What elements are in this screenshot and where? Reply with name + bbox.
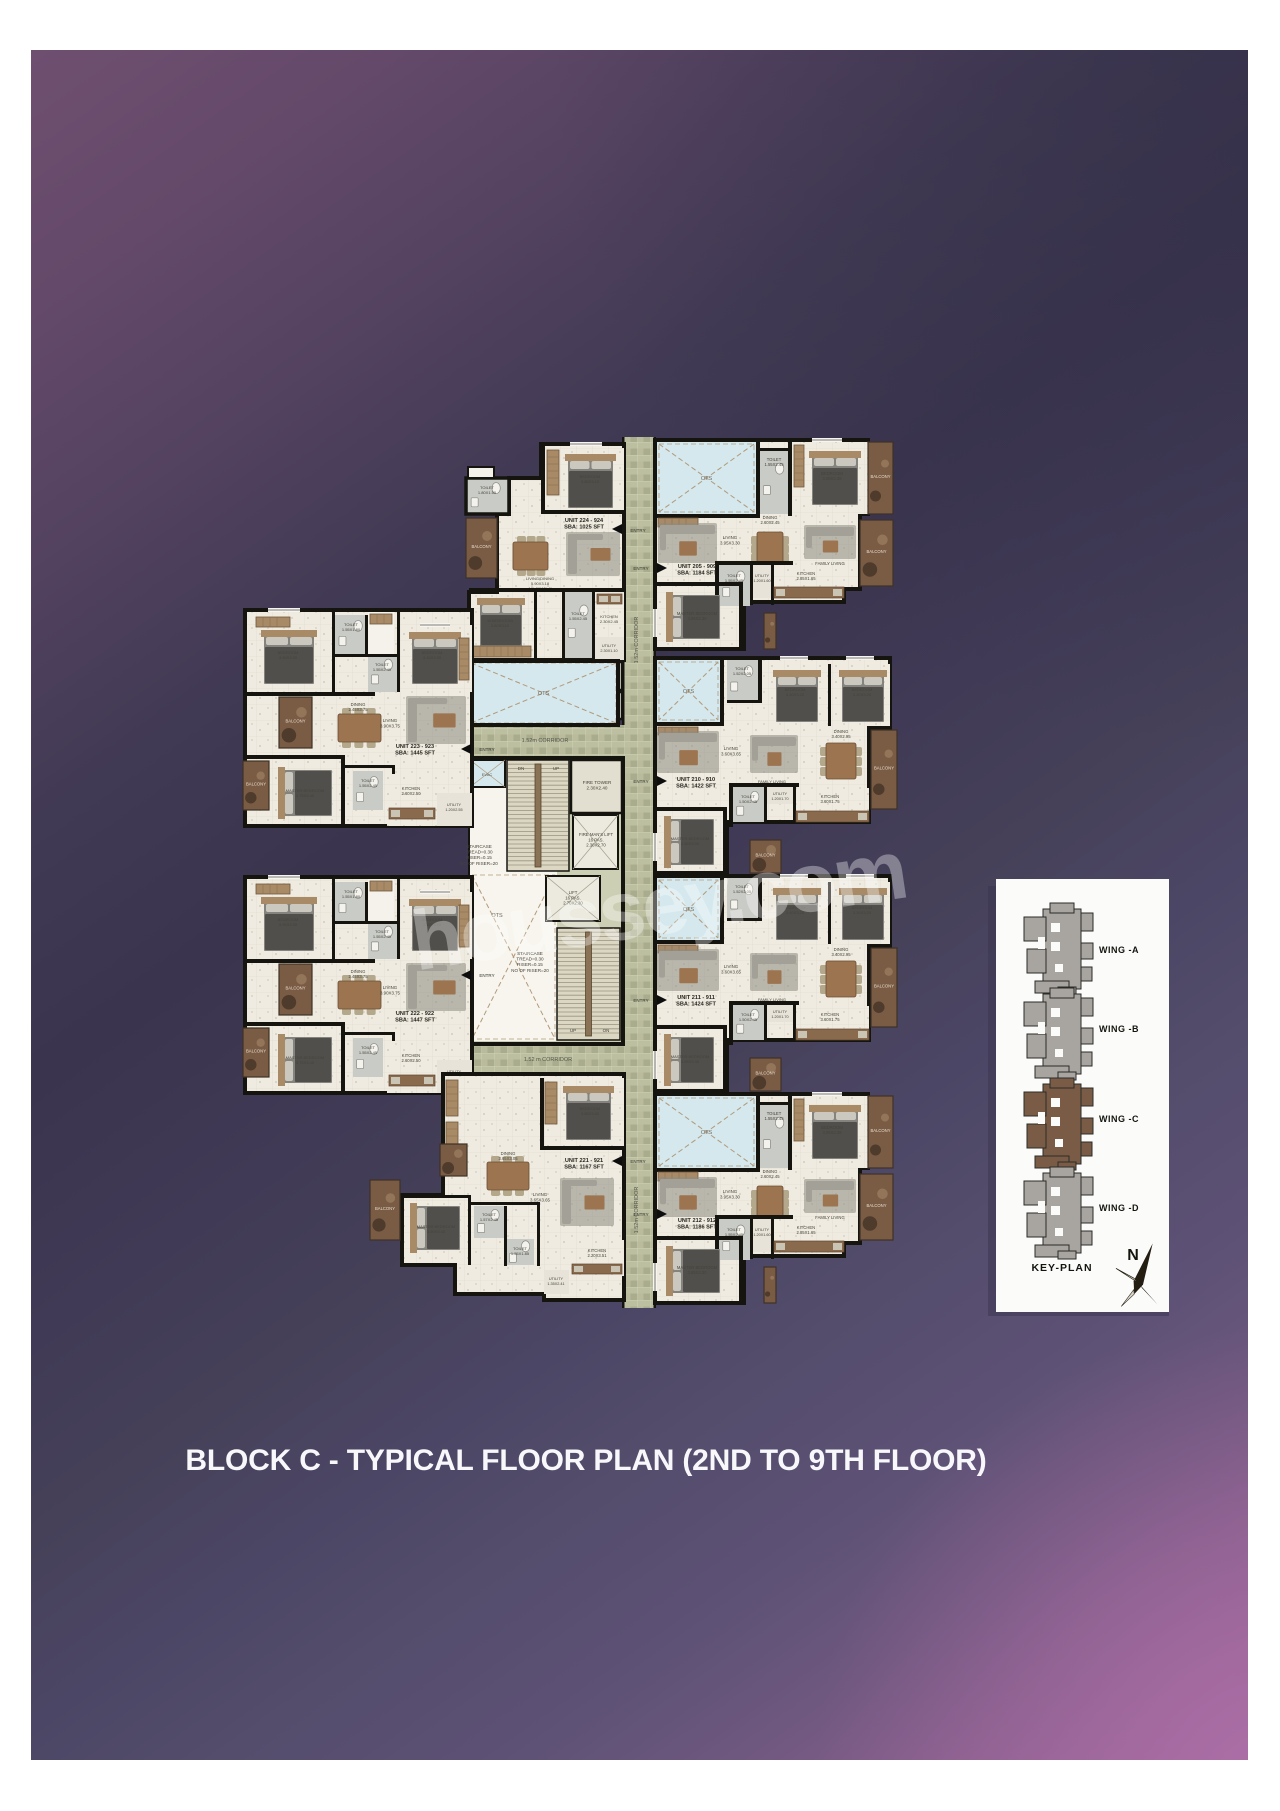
- svg-text:1.20X2.55: 1.20X2.55: [445, 808, 462, 812]
- svg-text:ON: ON: [603, 1028, 610, 1033]
- svg-text:3.95X3.30: 3.95X3.30: [720, 1194, 741, 1199]
- svg-text:WING -B: WING -B: [1099, 1024, 1139, 1034]
- svg-text:SBA: 1445 SFT: SBA: 1445 SFT: [395, 751, 435, 757]
- svg-text:1.20X1.70: 1.20X1.70: [771, 797, 788, 801]
- svg-text:LIVING: LIVING: [723, 1189, 738, 1194]
- svg-text:16 PAS.: 16 PAS.: [588, 837, 603, 842]
- svg-text:LIVING: LIVING: [383, 985, 398, 990]
- svg-text:1.20X1.60: 1.20X1.60: [753, 579, 770, 583]
- svg-text:3.90X3.75: 3.90X3.75: [380, 723, 401, 728]
- svg-text:2.45X3.75: 2.45X3.75: [348, 974, 368, 979]
- svg-text:N: N: [1127, 1247, 1139, 1264]
- svg-text:NO OF RISER=20: NO OF RISER=20: [460, 861, 498, 866]
- svg-text:UNIT 211 - 911: UNIT 211 - 911: [677, 995, 715, 1001]
- svg-text:3.50X3.45: 3.50X3.45: [427, 1229, 446, 1234]
- svg-text:SBA: 1424 SFT: SBA: 1424 SFT: [676, 1002, 716, 1008]
- svg-text:1.55X2.40: 1.55X2.40: [373, 934, 392, 939]
- svg-text:1.52m CORRIDOR: 1.52m CORRIDOR: [634, 617, 640, 664]
- svg-text:SBA: 1186 SFT: SBA: 1186 SFT: [677, 1225, 717, 1231]
- svg-text:UTILITY: UTILITY: [549, 1277, 564, 1281]
- svg-text:3.65X3.30: 3.65X3.30: [687, 1270, 707, 1275]
- svg-text:1.52m CORRIDOR: 1.52m CORRIDOR: [634, 1187, 640, 1234]
- svg-text:UTILITY: UTILITY: [602, 644, 617, 648]
- svg-text:STAIRCASE: STAIRCASE: [466, 844, 492, 849]
- svg-text:1.20X1.70: 1.20X1.70: [771, 1015, 788, 1019]
- svg-text:1.55X1.80: 1.55X1.80: [342, 894, 361, 899]
- svg-text:BALCONY: BALCONY: [866, 549, 886, 554]
- svg-text:1.55X2.40: 1.55X2.40: [373, 667, 392, 672]
- svg-text:EVAC: EVAC: [482, 772, 493, 777]
- svg-text:1.52m CORRIDOR: 1.52m CORRIDOR: [522, 738, 569, 744]
- svg-text:WING -D: WING -D: [1099, 1203, 1139, 1213]
- svg-text:1.52 m CORRIDOR: 1.52 m CORRIDOR: [524, 1057, 572, 1063]
- svg-text:2.60X2.45: 2.60X2.45: [760, 1174, 780, 1179]
- svg-text:3.95X3.55: 3.95X3.55: [279, 922, 298, 927]
- svg-text:1.80X1.50: 1.80X1.50: [478, 490, 497, 495]
- svg-text:1.55X2.45: 1.55X2.45: [359, 783, 378, 788]
- svg-text:SBA: 1184 SFT: SBA: 1184 SFT: [677, 571, 717, 577]
- svg-text:FIRE MAN'S LIFT: FIRE MAN'S LIFT: [579, 832, 614, 837]
- svg-text:UTILITY: UTILITY: [773, 1010, 788, 1014]
- svg-text:ENTRY: ENTRY: [633, 566, 648, 571]
- svg-text:3.65X3.05: 3.65X3.05: [498, 1156, 518, 1161]
- svg-text:UTILITY: UTILITY: [447, 803, 462, 807]
- svg-text:3.60X3.15: 3.60X3.15: [491, 623, 510, 628]
- svg-text:TREAD=0.30: TREAD=0.30: [465, 850, 493, 855]
- svg-text:UNIT 221 - 921: UNIT 221 - 921: [565, 1158, 603, 1164]
- svg-text:WING -A: WING -A: [1099, 945, 1139, 955]
- svg-text:1.55X2.45: 1.55X2.45: [764, 462, 784, 467]
- svg-text:WING -C: WING -C: [1099, 1114, 1139, 1124]
- svg-text:UNIT 210 - 910: UNIT 210 - 910: [677, 777, 715, 783]
- svg-text:3.15X3.55: 3.15X3.55: [423, 655, 442, 660]
- svg-text:SBA: 1025 SFT: SBA: 1025 SFT: [564, 525, 604, 531]
- svg-text:3.05X3.35: 3.05X3.35: [822, 1130, 842, 1135]
- svg-text:2.30X2.40: 2.30X2.40: [587, 786, 608, 791]
- svg-text:3.60X3.65: 3.60X3.65: [721, 751, 742, 756]
- svg-text:2.60X2.45: 2.60X2.45: [760, 520, 780, 525]
- svg-text:3.65X3.65: 3.65X3.65: [581, 1111, 600, 1116]
- svg-text:3.95X3.30: 3.95X3.30: [720, 540, 741, 545]
- svg-text:3.90X3.75: 3.90X3.75: [380, 990, 401, 995]
- svg-text:BALCONY: BALCONY: [755, 1071, 775, 1076]
- svg-text:OTS: OTS: [683, 689, 695, 695]
- svg-text:UNIT 223 - 923: UNIT 223 - 923: [396, 744, 434, 750]
- svg-text:ENTRY: ENTRY: [633, 1212, 648, 1217]
- svg-text:SBA: 1447 SFT: SBA: 1447 SFT: [395, 1018, 435, 1024]
- svg-text:3.75X3.40: 3.75X3.40: [296, 1060, 315, 1065]
- svg-text:1.55X2.45: 1.55X2.45: [569, 616, 588, 621]
- svg-text:1.52X2.05: 1.52X2.05: [733, 671, 752, 676]
- svg-text:1.55X1.80: 1.55X1.80: [342, 627, 361, 632]
- svg-text:1.55X2.45: 1.55X2.45: [764, 1116, 784, 1121]
- svg-text:3.65X3.30: 3.65X3.30: [687, 616, 707, 621]
- svg-text:RISER=0.15: RISER=0.15: [466, 855, 492, 860]
- svg-text:BALCONY: BALCONY: [874, 984, 894, 989]
- svg-text:ENTRY: ENTRY: [479, 747, 494, 752]
- svg-text:UTILITY: UTILITY: [755, 1228, 770, 1232]
- svg-text:3.40X2.95: 3.40X2.95: [831, 952, 851, 957]
- svg-text:UNIT 212 - 912: UNIT 212 - 912: [678, 1218, 716, 1224]
- svg-text:UTILITY: UTILITY: [773, 792, 788, 796]
- svg-text:2.60X2.50: 2.60X2.50: [401, 1058, 421, 1063]
- svg-text:3.20X3.25: 3.20X3.25: [853, 692, 872, 697]
- svg-text:2.85X1.65: 2.85X1.65: [796, 1230, 816, 1235]
- svg-text:BALCONY: BALCONY: [866, 1203, 886, 1208]
- svg-text:BALCONY: BALCONY: [285, 986, 305, 991]
- svg-text:3.55X3.30: 3.55X3.30: [681, 841, 700, 846]
- svg-text:UNIT 224 - 924: UNIT 224 - 924: [565, 518, 604, 524]
- svg-text:BALCONY: BALCONY: [246, 782, 266, 787]
- svg-text:ENTRY: ENTRY: [633, 998, 648, 1003]
- svg-text:3.65X3.65: 3.65X3.65: [530, 1197, 551, 1202]
- svg-text:LIVING: LIVING: [724, 746, 739, 751]
- svg-text:BLOCK C - TYPICAL FLOOR PLAN (: BLOCK C - TYPICAL FLOOR PLAN (2ND TO 9TH…: [185, 1444, 986, 1477]
- svg-text:LIVING: LIVING: [383, 718, 398, 723]
- svg-text:UNIT 222 - 922: UNIT 222 - 922: [396, 1011, 434, 1017]
- svg-text:UTILITY: UTILITY: [755, 574, 770, 578]
- svg-text:1.35X2.41: 1.35X2.41: [547, 1282, 564, 1286]
- svg-text:OTS: OTS: [701, 476, 713, 482]
- svg-text:2.30X1.10: 2.30X1.10: [600, 649, 617, 653]
- svg-text:3.40X3.25: 3.40X3.25: [786, 692, 805, 697]
- svg-text:2.60X2.50: 2.60X2.50: [401, 791, 421, 796]
- svg-text:3.60X1.75: 3.60X1.75: [820, 799, 840, 804]
- svg-text:LIVING: LIVING: [533, 1192, 548, 1197]
- svg-text:UP: UP: [553, 766, 559, 771]
- svg-text:1.55X2.45: 1.55X2.45: [359, 1050, 378, 1055]
- svg-text:LIVING: LIVING: [723, 535, 738, 540]
- svg-text:1.50X2.45: 1.50X2.45: [739, 1017, 758, 1022]
- svg-text:3.05X3.35: 3.05X3.35: [822, 476, 842, 481]
- svg-text:3.55X3.30: 3.55X3.30: [681, 1059, 700, 1064]
- svg-text:ENTRY: ENTRY: [633, 779, 648, 784]
- svg-text:1.20X1.60: 1.20X1.60: [753, 1233, 770, 1237]
- svg-text:2.20X3.51: 2.20X3.51: [587, 1253, 607, 1258]
- svg-text:3.75X3.40: 3.75X3.40: [296, 793, 315, 798]
- svg-text:UP: UP: [570, 1028, 576, 1033]
- svg-text:3.60X3.65: 3.60X3.65: [721, 969, 742, 974]
- svg-text:BALCONY: BALCONY: [870, 474, 890, 479]
- svg-text:2.30X2.45: 2.30X2.45: [600, 619, 619, 624]
- svg-text:BALCONY: BALCONY: [870, 1128, 890, 1133]
- svg-text:3.40X2.95: 3.40X2.95: [831, 734, 851, 739]
- svg-text:BALCONY: BALCONY: [285, 719, 305, 724]
- svg-text:UNIT 205 - 909: UNIT 205 - 909: [678, 564, 716, 570]
- svg-text:BALCONY: BALCONY: [874, 766, 894, 771]
- svg-text:1.57X2.45: 1.57X2.45: [480, 1217, 499, 1222]
- svg-text:OTS: OTS: [538, 691, 550, 697]
- svg-text:2.85X1.65: 2.85X1.65: [796, 576, 816, 581]
- svg-text:2.45X3.75: 2.45X3.75: [348, 707, 368, 712]
- svg-text:DN: DN: [518, 766, 525, 771]
- svg-text:KEY-PLAN: KEY-PLAN: [1031, 1262, 1092, 1274]
- svg-text:SBA: 1422 SFT: SBA: 1422 SFT: [676, 784, 716, 790]
- svg-text:LIVING: LIVING: [724, 964, 739, 969]
- svg-text:3.95X3.55: 3.95X3.55: [279, 655, 298, 660]
- svg-text:2.30X2.70: 2.30X2.70: [586, 843, 606, 848]
- svg-text:1.50X2.45: 1.50X2.45: [739, 799, 758, 804]
- svg-text:1.55X1.85: 1.55X1.85: [511, 1251, 530, 1256]
- svg-text:BALCONY: BALCONY: [375, 1206, 395, 1211]
- svg-text:3.60X1.75: 3.60X1.75: [820, 1017, 840, 1022]
- svg-text:4.85X3.15: 4.85X3.15: [581, 479, 600, 484]
- svg-text:BALCONY: BALCONY: [246, 1049, 266, 1054]
- svg-text:SBA: 1167 SFT: SBA: 1167 SFT: [564, 1165, 604, 1171]
- svg-text:ENTRY: ENTRY: [630, 1159, 645, 1164]
- svg-text:FIRE TOWER: FIRE TOWER: [583, 780, 612, 785]
- svg-text:BALCONY: BALCONY: [471, 544, 491, 549]
- svg-text:OTS: OTS: [701, 1130, 713, 1136]
- svg-text:ENTRY: ENTRY: [630, 528, 645, 533]
